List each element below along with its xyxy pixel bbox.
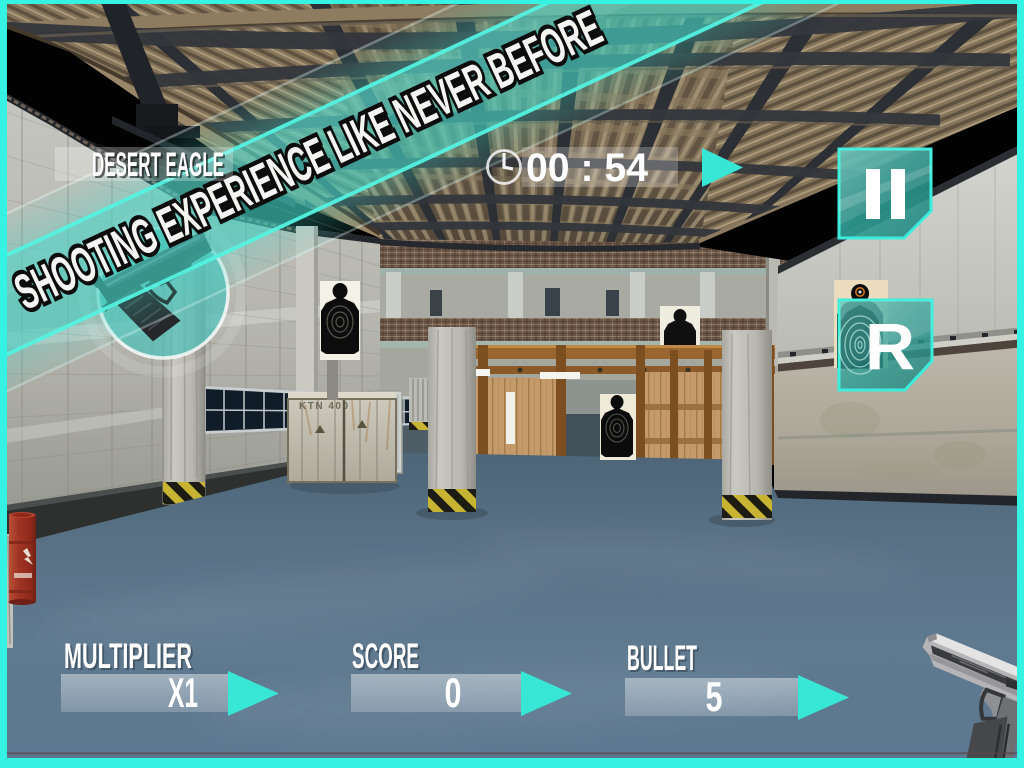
- svg-text:DESERT EAGLE: DESERT EAGLE: [92, 146, 224, 184]
- svg-text:5: 5: [706, 673, 723, 720]
- svg-text:00 : 54: 00 : 54: [526, 146, 649, 190]
- svg-text:KTN 400: KTN 400: [299, 401, 350, 412]
- svg-text:SCORE: SCORE: [352, 637, 419, 676]
- svg-text:0: 0: [445, 669, 462, 716]
- svg-text:X1: X1: [168, 669, 198, 716]
- svg-text:R: R: [865, 309, 915, 383]
- svg-text:BULLET: BULLET: [627, 639, 697, 678]
